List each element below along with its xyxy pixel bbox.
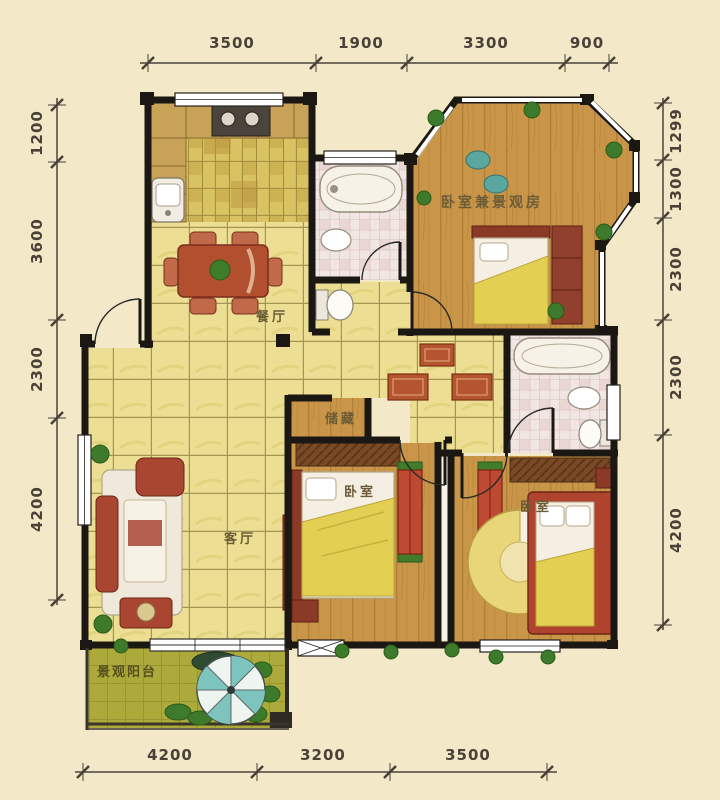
dim-top-4: 900: [570, 34, 604, 52]
toilet-tank: [316, 290, 328, 320]
bed-headboard: [472, 226, 550, 238]
dim-bottom-2: 3200: [300, 746, 346, 764]
dim-top-1: 3500: [209, 34, 255, 52]
toilet: [579, 420, 601, 448]
label-storage: 储藏: [324, 411, 357, 427]
dim-left-2: 3600: [28, 218, 46, 264]
decor-stone: [466, 151, 490, 169]
wardrobe: [296, 442, 400, 466]
side-sofa: [96, 496, 118, 592]
dimension-left: 1200 3600 2300 4200: [28, 98, 66, 606]
dim-right-3: 2300: [667, 246, 685, 292]
label-balcony: 景观阳台: [97, 664, 157, 680]
dim-right-2: 1300: [667, 166, 685, 212]
label-bedroom-view: 卧室兼景观房: [441, 194, 543, 211]
pillow: [566, 506, 590, 526]
bathroom2-window: [607, 385, 620, 440]
label-bedroom-left: 卧室: [344, 484, 376, 500]
dim-top-3: 3300: [463, 34, 509, 52]
dim-bottom-1: 4200: [147, 746, 193, 764]
dim-right-4: 2300: [667, 354, 685, 400]
dim-left-3: 2300: [28, 346, 46, 392]
kitchen-accent-tile: [231, 181, 258, 208]
label-dining: 餐厅: [255, 309, 288, 325]
dim-right-1: 1299: [667, 108, 685, 154]
table-plant: [210, 260, 230, 280]
armchair: [136, 458, 184, 496]
nightstand: [292, 600, 318, 622]
floor-plan: 卧室兼景观房 餐厅 客厅 储藏 卧室 卧室 景观阳台 3500 1900 330…: [0, 0, 720, 800]
decor-stone: [484, 175, 508, 193]
pillow: [480, 243, 508, 261]
label-bedroom-right: 卧室: [520, 499, 552, 515]
bed-headboard: [292, 470, 302, 600]
dim-left-1: 1200: [28, 110, 46, 156]
sink: [321, 229, 351, 251]
passage-floor: [288, 348, 312, 398]
sink: [568, 387, 600, 409]
pillow: [306, 478, 336, 500]
wardrobe: [510, 458, 610, 482]
bathtub: [514, 338, 610, 374]
label-living: 客厅: [224, 531, 256, 547]
dimension-top: 3500 1900 3300 900: [140, 34, 618, 72]
floor-plan-canvas: 卧室兼景观房 餐厅 客厅 储藏 卧室 卧室 景观阳台 3500 1900 330…: [0, 0, 720, 800]
dimension-right: 1299 1300 2300 2300 4200: [654, 97, 685, 631]
toilet: [327, 290, 353, 320]
sofa-set: [96, 458, 184, 628]
dim-left-4: 4200: [28, 486, 46, 532]
dim-bottom-3: 3500: [445, 746, 491, 764]
blanket: [536, 548, 594, 626]
entry-door-arc: [95, 299, 140, 344]
dim-right-5: 4200: [667, 507, 685, 553]
dimension-bottom: 4200 3200 3500: [75, 746, 557, 781]
dim-top-2: 1900: [338, 34, 384, 52]
